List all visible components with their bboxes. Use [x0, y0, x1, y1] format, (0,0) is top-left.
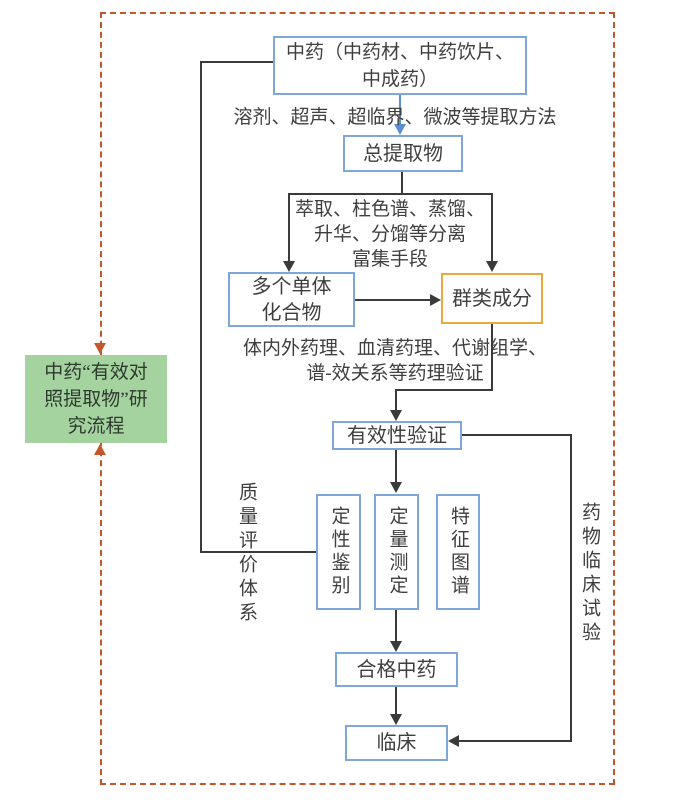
node-efficacy-validation: 有效性验证 — [332, 421, 462, 450]
flowchart-canvas: 中药“有效对 照提取物”研 究流程 中药（中药材、中药饮片、 中成药） 总提取物… — [0, 0, 687, 811]
arrowhead-to-clinical — [390, 714, 402, 725]
node-quantitative-determination-label: 定量测定 — [384, 506, 410, 598]
node-qualified-medicine: 合格中药 — [335, 652, 458, 687]
process-title-box: 中药“有效对 照提取物”研 究流程 — [25, 355, 167, 443]
connector-left-top-horizontal — [200, 61, 273, 63]
arrowhead-to-quantitative — [390, 482, 402, 493]
annotation-separation-line1: 萃取、柱色谱、蒸馏、 — [270, 197, 510, 222]
arrowhead-dashed-bottom — [94, 444, 106, 455]
annotation-extraction-methods: 溶剂、超声、超临界、微波等提取方法 — [180, 105, 610, 130]
node-herb-source-line1: 中药（中药材、中药饮片、 — [286, 39, 514, 66]
node-quantitative-determination: 定量测定 — [374, 494, 419, 610]
annotation-pharmacology: 体内外药理、血清药理、代谢组学、 谱-效关系等药理验证 — [180, 336, 610, 386]
label-quality-evaluation-system: 质量评价体系 — [233, 482, 260, 637]
process-title-line1: 中药“有效对 — [44, 359, 147, 386]
connector-groups-left — [395, 389, 493, 391]
arrowhead-monomers-to-groups — [430, 294, 441, 306]
annotation-pharmacology-line2: 谱-效关系等药理验证 — [180, 361, 610, 386]
connector-to-efficacy — [395, 389, 397, 411]
node-qualitative-identification: 定性鉴别 — [316, 494, 361, 610]
process-title-line2: 照提取物”研 — [44, 386, 147, 413]
connector-qualified-down — [395, 687, 397, 715]
annotation-pharmacology-line1: 体内外药理、血清药理、代谢组学、 — [180, 336, 610, 361]
annotation-separation-line3: 富集手段 — [270, 247, 510, 272]
connector-quantitative-down — [395, 610, 397, 642]
connector-efficacy-right — [460, 434, 572, 436]
connector-split-horizontal — [288, 193, 493, 195]
connector-right-vertical — [570, 434, 572, 742]
arrowhead-dashed-top — [94, 343, 106, 354]
connector-left-vertical — [200, 61, 202, 553]
arrowhead-to-qualified — [390, 641, 402, 652]
connector-efficacy-down — [395, 450, 397, 483]
node-monomers-line2: 化合物 — [262, 300, 322, 326]
connector-monomers-to-groups — [353, 299, 431, 301]
node-clinical: 临床 — [345, 725, 448, 761]
arrowhead-to-efficacy — [390, 410, 402, 421]
node-herb-source-line2: 中成药） — [362, 66, 438, 93]
node-characteristic-chromatogram: 特征图谱 — [436, 494, 480, 610]
node-total-extract: 总提取物 — [343, 135, 463, 172]
label-drug-clinical-trial: 药物临床试验 — [576, 502, 603, 657]
arrowhead-to-clinical-right — [448, 735, 459, 747]
connector-right-bottom — [458, 740, 572, 742]
node-monomers: 多个单体 化合物 — [228, 272, 355, 327]
node-component-groups: 群类成分 — [441, 273, 543, 324]
process-title-line3: 究流程 — [67, 413, 124, 440]
node-herb-source: 中药（中药材、中药饮片、 中成药） — [273, 36, 527, 95]
annotation-separation-line2: 升华、分馏等分离 — [270, 222, 510, 247]
node-qualitative-identification-label: 定性鉴别 — [326, 506, 352, 598]
node-characteristic-chromatogram-label: 特征图谱 — [445, 506, 471, 598]
connector-extract-down — [401, 172, 403, 194]
annotation-separation-methods: 萃取、柱色谱、蒸馏、 升华、分馏等分离 富集手段 — [270, 197, 510, 272]
node-monomers-line1: 多个单体 — [252, 274, 332, 300]
